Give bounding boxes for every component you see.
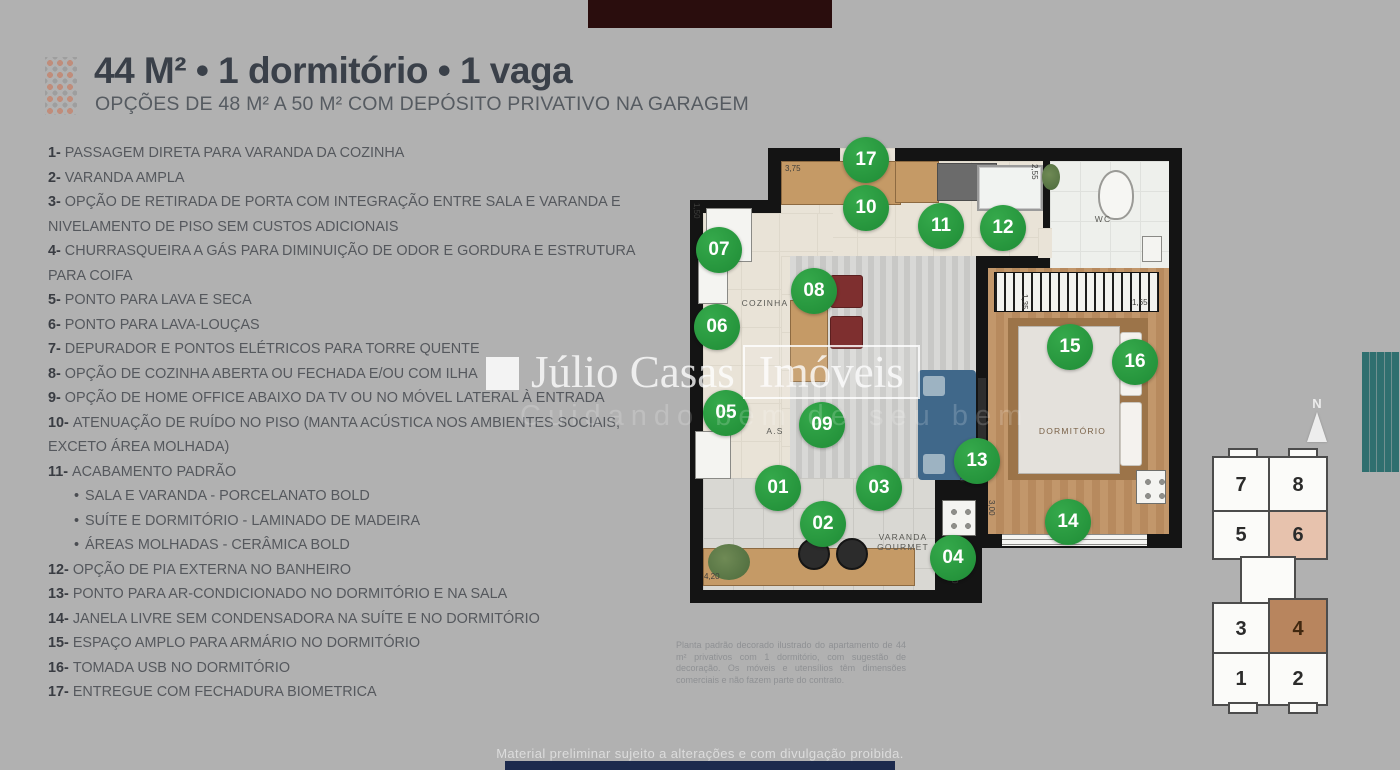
- plan-marker-17: 17: [843, 137, 889, 183]
- keyplan-unit-3: 3: [1212, 602, 1270, 656]
- feature-text: PONTO PARA LAVA E SECA: [65, 292, 252, 308]
- feature-text: OPÇÃO DE COZINHA ABERTA OU FECHADA E/OU …: [65, 366, 478, 382]
- plan-marker-04: 04: [930, 535, 976, 581]
- keyplan-unit-7: 7: [1212, 456, 1270, 514]
- watermark-logo-icon: [486, 357, 519, 390]
- feature-item: 4-CHURRASQUEIRA A GÁS PARA DIMINUIÇÃO DE…: [48, 239, 642, 288]
- feature-item: 1-PASSAGEM DIRETA PARA VARANDA DA COZINH…: [48, 141, 642, 166]
- feature-item: 13-PONTO PARA AR-CONDICIONADO NO DORMITÓ…: [48, 582, 642, 607]
- keyplan-unit-8: 8: [1268, 456, 1328, 514]
- feature-item: 12-OPÇÃO DE PIA EXTERNA NO BANHEIRO: [48, 558, 642, 583]
- room-label-text: VARANDA: [879, 532, 928, 542]
- feature-item: 15-ESPAÇO AMPLO PARA ARMÁRIO NO DORMITÓR…: [48, 631, 642, 656]
- room-label-text: GOURMET: [877, 542, 929, 552]
- keyplan-unit-1: 1: [1212, 652, 1270, 706]
- dim-label: 3,75: [785, 164, 801, 173]
- feature-text: SALA E VARANDA - PORCELANATO BOLD: [85, 488, 370, 504]
- bullet-icon: •: [74, 513, 79, 529]
- feature-item: 11-ACABAMENTO PADRÃO: [48, 460, 642, 485]
- feature-text: SUÍTE E DORMITÓRIO - LAMINADO DE MADEIRA: [85, 513, 420, 529]
- keyplan-unit-4: 4: [1268, 598, 1328, 660]
- keyplan-unit-5: 5: [1212, 510, 1270, 560]
- plan-note: Planta padrão decorado ilustrado do apar…: [676, 640, 906, 686]
- feature-item: 5-PONTO PARA LAVA E SECA: [48, 288, 642, 313]
- feature-number: 7-: [48, 341, 61, 357]
- page-subtitle: OPÇÕES DE 48 M² A 50 M² COM DEPÓSITO PRI…: [95, 93, 749, 116]
- toilet: [1098, 170, 1134, 220]
- north-arrow-icon: [1307, 412, 1327, 442]
- feature-number: 9-: [48, 390, 61, 406]
- feature-number: 13-: [48, 586, 69, 602]
- feature-text: ENTREGUE COM FECHADURA BIOMETRICA: [73, 684, 377, 700]
- bullet-icon: •: [74, 537, 79, 553]
- plan-marker-16: 16: [1112, 339, 1158, 385]
- entry-cabinet: [895, 161, 939, 203]
- north-label: N: [1297, 396, 1337, 411]
- plan-marker-13: 13: [954, 438, 1000, 484]
- feature-item: 14-JANELA LIVRE SEM CONDENSADORA NA SUÍT…: [48, 607, 642, 632]
- watermark-slogan: Cuidando bem de seu bem: [520, 400, 1029, 433]
- dim-label: 1,65: [1132, 298, 1148, 307]
- feature-text: CHURRASQUEIRA A GÁS PARA DIMINUIÇÃO DE O…: [48, 243, 635, 284]
- feature-number: 4-: [48, 243, 61, 259]
- feature-text: PASSAGEM DIRETA PARA VARANDA DA COZINHA: [65, 145, 405, 161]
- watermark-text: Júlio Casas: [531, 347, 735, 397]
- feature-number: 8-: [48, 366, 61, 382]
- feature-item: 3-OPÇÃO DE RETIRADA DE PORTA COM INTEGRA…: [48, 190, 642, 239]
- feature-text: ESPAÇO AMPLO PARA ARMÁRIO NO DORMITÓRIO: [73, 635, 420, 651]
- plan-marker-03: 03: [856, 465, 902, 511]
- bullet-icon: •: [74, 488, 79, 504]
- north-indicator: N: [1297, 396, 1337, 442]
- header-dots-icon: [45, 57, 77, 115]
- dim-label: 3,00: [987, 500, 996, 516]
- laundry-sink: [695, 431, 731, 479]
- feature-number: 12-: [48, 562, 69, 578]
- feature-text: DEPURADOR E PONTOS ELÉTRICOS PARA TORRE …: [65, 341, 480, 357]
- plan-marker-06: 06: [694, 304, 740, 350]
- plan-marker-14: 14: [1045, 499, 1091, 545]
- dim-label: 2,55: [1030, 164, 1039, 180]
- barbecue-grill: [942, 500, 976, 536]
- feature-number: 2-: [48, 170, 61, 186]
- feature-item: 6-PONTO PARA LAVA-LOUÇAS: [48, 313, 642, 338]
- feature-number: 15-: [48, 635, 69, 651]
- feature-subitem: •ÁREAS MOLHADAS - CERÂMICA BOLD: [48, 533, 642, 558]
- watermark-text-boxed: Imóveis: [743, 345, 920, 399]
- teal-dots-decoration: [1362, 352, 1399, 472]
- feature-item: 2-VARANDA AMPLA: [48, 166, 642, 191]
- room-label-wc: WC: [1088, 214, 1118, 224]
- feature-subitem: •SUÍTE E DORMITÓRIO - LAMINADO DE MADEIR…: [48, 509, 642, 534]
- feature-text: OPÇÃO DE PIA EXTERNA NO BANHEIRO: [73, 562, 351, 578]
- feature-number: 3-: [48, 194, 61, 210]
- room-label-dormitorio: DORMITÓRIO: [1025, 426, 1120, 436]
- feature-item: 16-TOMADA USB NO DORMITÓRIO: [48, 656, 642, 681]
- feature-number: 14-: [48, 611, 69, 627]
- feature-text: TOMADA USB NO DORMITÓRIO: [73, 660, 290, 676]
- wc-sink: [1142, 236, 1162, 262]
- plan-marker-10: 10: [843, 185, 889, 231]
- plan-marker-07: 07: [696, 227, 742, 273]
- wc-doorway: [1038, 228, 1052, 258]
- plan-marker-02: 02: [800, 501, 846, 547]
- dim-label: 1,35: [1020, 294, 1029, 310]
- bottom-brand-bar: [505, 761, 895, 770]
- feature-number: 16-: [48, 660, 69, 676]
- feature-item: 17-ENTREGUE COM FECHADURA BIOMETRICA: [48, 680, 642, 705]
- feature-number: 1-: [48, 145, 61, 161]
- bed-pillow: [1120, 402, 1142, 466]
- room-label-cozinha: COZINHA: [735, 298, 795, 308]
- feature-number: 10-: [48, 415, 69, 431]
- plan-marker-11: 11: [918, 203, 964, 249]
- feature-text: OPÇÃO DE RETIRADA DE PORTA COM INTEGRAÇÃ…: [48, 194, 621, 235]
- feature-number: 5-: [48, 292, 61, 308]
- nightstand: [1136, 470, 1166, 504]
- plan-marker-12: 12: [980, 205, 1026, 251]
- feature-text: PONTO PARA LAVA-LOUÇAS: [65, 317, 260, 333]
- keyplan-unit-6: 6: [1268, 510, 1328, 560]
- dim-label: 4,20: [704, 572, 720, 581]
- page-title: 44 M² • 1 dormitório • 1 vaga: [94, 50, 572, 92]
- plant-icon: [1042, 164, 1060, 190]
- feature-subitem: •SALA E VARANDA - PORCELANATO BOLD: [48, 484, 642, 509]
- watermark: Júlio CasasImóveis: [486, 346, 920, 398]
- feature-number: 17-: [48, 684, 69, 700]
- footer-disclaimer: Material preliminar sujeito a alterações…: [0, 746, 1400, 761]
- plan-marker-15: 15: [1047, 324, 1093, 370]
- feature-text: PONTO PARA AR-CONDICIONADO NO DORMITÓRIO…: [73, 586, 507, 602]
- feature-text: JANELA LIVRE SEM CONDENSADORA NA SUÍTE E…: [73, 611, 540, 627]
- feature-text: VARANDA AMPLA: [65, 170, 185, 186]
- feature-text: ACABAMENTO PADRÃO: [72, 464, 236, 480]
- top-brand-bar: [588, 0, 832, 28]
- keyplan-unit-2: 2: [1268, 652, 1328, 706]
- feature-text: ÁREAS MOLHADAS - CERÂMICA BOLD: [85, 537, 350, 553]
- keyplan-outline: [1288, 702, 1318, 714]
- keyplan-outline: [1228, 702, 1258, 714]
- feature-number: 11-: [48, 464, 68, 480]
- plan-marker-08: 08: [791, 268, 837, 314]
- dim-label: 1,50: [692, 203, 701, 219]
- plan-marker-01: 01: [755, 465, 801, 511]
- feature-number: 6-: [48, 317, 61, 333]
